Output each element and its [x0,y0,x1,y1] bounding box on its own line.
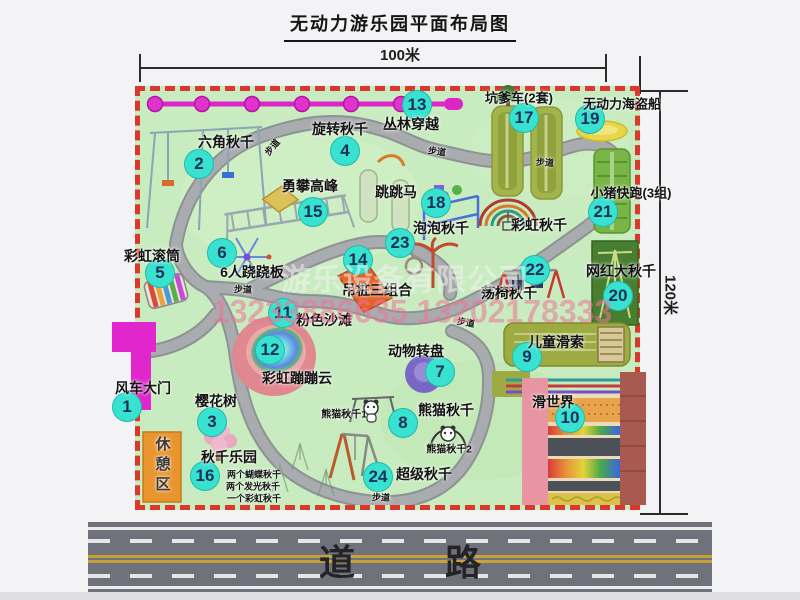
attraction-label-11: 粉色沙滩 [296,310,352,330]
attraction-badge-2: 2 [184,149,214,179]
attraction-label-22: 荡椅秋千 [481,283,537,303]
attraction-label-10: 滑世界 [532,392,574,412]
attraction-badge-11: 11 [268,298,298,328]
attraction-badge-24: 24 [363,462,393,492]
dim-top-line [140,67,606,69]
sidewalk-strip [0,592,800,600]
attraction-label-17: 坑爹车(2套) [485,88,553,107]
attraction-label-2: 六角秋千 [198,132,254,152]
screenshot-root: 无动力游乐园平面布局图 100米 120米 [0,0,800,600]
attraction-label-6: 6人跷跷板 [220,262,284,282]
attraction-badge-23: 23 [385,228,415,258]
attraction-badge-14: 14 [343,245,373,275]
attraction-badge-20: 20 [603,281,633,311]
attraction-label-20: 网红大秋千 [586,261,656,281]
attraction-badge-4: 4 [330,136,360,166]
attraction-badge-21: 21 [588,197,618,227]
attraction-label-19: 无动力海盗船 [583,94,661,113]
attraction-label-13: 丛林穿越 [383,114,439,134]
road-label: 道路 [229,534,571,586]
attraction-label-15: 勇攀高峰 [282,176,338,196]
road-edge-line-bottom [88,586,712,589]
attraction-label-21: 小猪快跑(3组) [591,183,672,202]
attraction-badge-3: 3 [197,407,227,437]
dim-right-tick-bottom [640,513,688,515]
attraction-label-8: 熊猫秋千 [418,400,474,420]
attraction-badge-7: 7 [425,357,455,387]
page-title: 无动力游乐园平面布局图 [284,10,516,42]
attraction-label-23: 泡泡秋千 [413,218,469,238]
attraction-badge-17: 17 [509,103,539,133]
attraction-label-4: 旋转秋千 [312,119,368,139]
dim-right-label: 120米 [661,275,682,315]
dim-top-label: 100米 [380,44,420,65]
attraction-badge-15: 15 [298,197,328,227]
attraction-badge-12: 12 [255,335,285,365]
attraction-label-14: 吊桩三组合 [342,280,412,300]
attraction-label-9: 儿童滑索 [528,332,584,352]
path-label: 步道 [234,282,252,296]
road: 道路 [88,522,712,592]
map-sublabel: 休憩区 [152,436,173,496]
attraction-badge-18: 18 [421,188,451,218]
attraction-label-3: 樱花树 [195,391,237,411]
map-sublabel: 熊猫秋千1 [321,406,367,421]
map-sublabel: 熊猫秋千2 [426,441,472,456]
attraction-badge-22: 22 [520,255,550,285]
road-edge-line-top [88,527,712,530]
attraction-label-5: 彩虹滚筒 [124,246,180,266]
path-label: 步道 [372,490,390,504]
attraction-label-16: 秋千乐园 [201,447,257,467]
attraction-label-12: 彩虹蹦蹦云 [262,368,332,388]
dim-top-tick-left [139,54,141,82]
map-sublabel: 彩虹秋千 [511,215,567,235]
attraction-badge-8: 8 [388,408,418,438]
path-label: 步道 [536,155,555,169]
attraction-label-7: 动物转盘 [388,341,444,361]
attraction-label-1: 风车大门 [115,378,171,398]
attraction-label-24: 超级秋千 [396,464,452,484]
path-label: 步道 [427,143,447,158]
attraction-label-18: 跳跳马 [375,182,417,202]
map-sublabel: 一个彩虹秋千 [227,492,281,505]
dim-right-tick-top [640,90,688,92]
dim-top-tick-right [605,54,607,82]
